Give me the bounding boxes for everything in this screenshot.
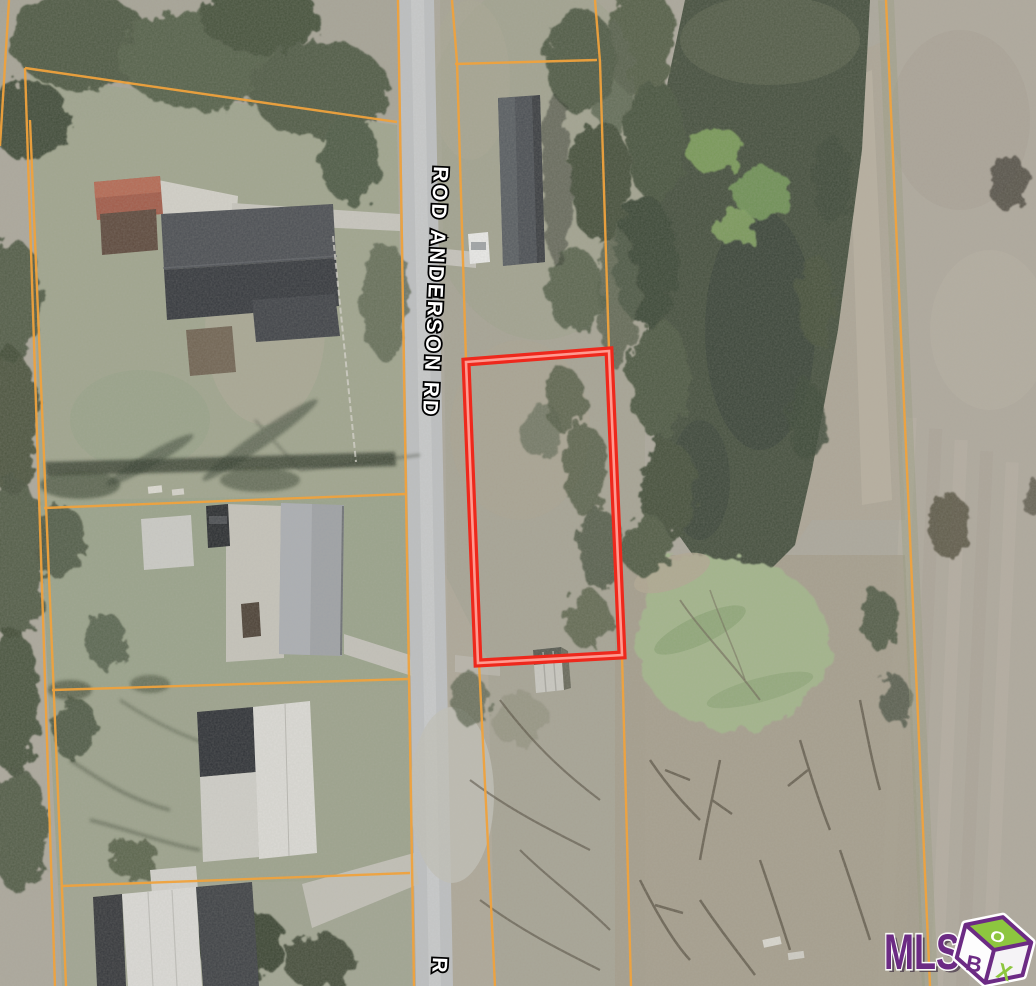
- mls-text: MLS: [884, 924, 960, 980]
- aerial-photo-viewport: ROD ANDERSON RD R MLS MLS O B X: [0, 0, 1036, 986]
- road-name-label-partial: R: [427, 957, 451, 974]
- photo-grain-overlay: [0, 0, 1036, 986]
- aerial-map: ROD ANDERSON RD R MLS MLS O B X: [0, 0, 1036, 986]
